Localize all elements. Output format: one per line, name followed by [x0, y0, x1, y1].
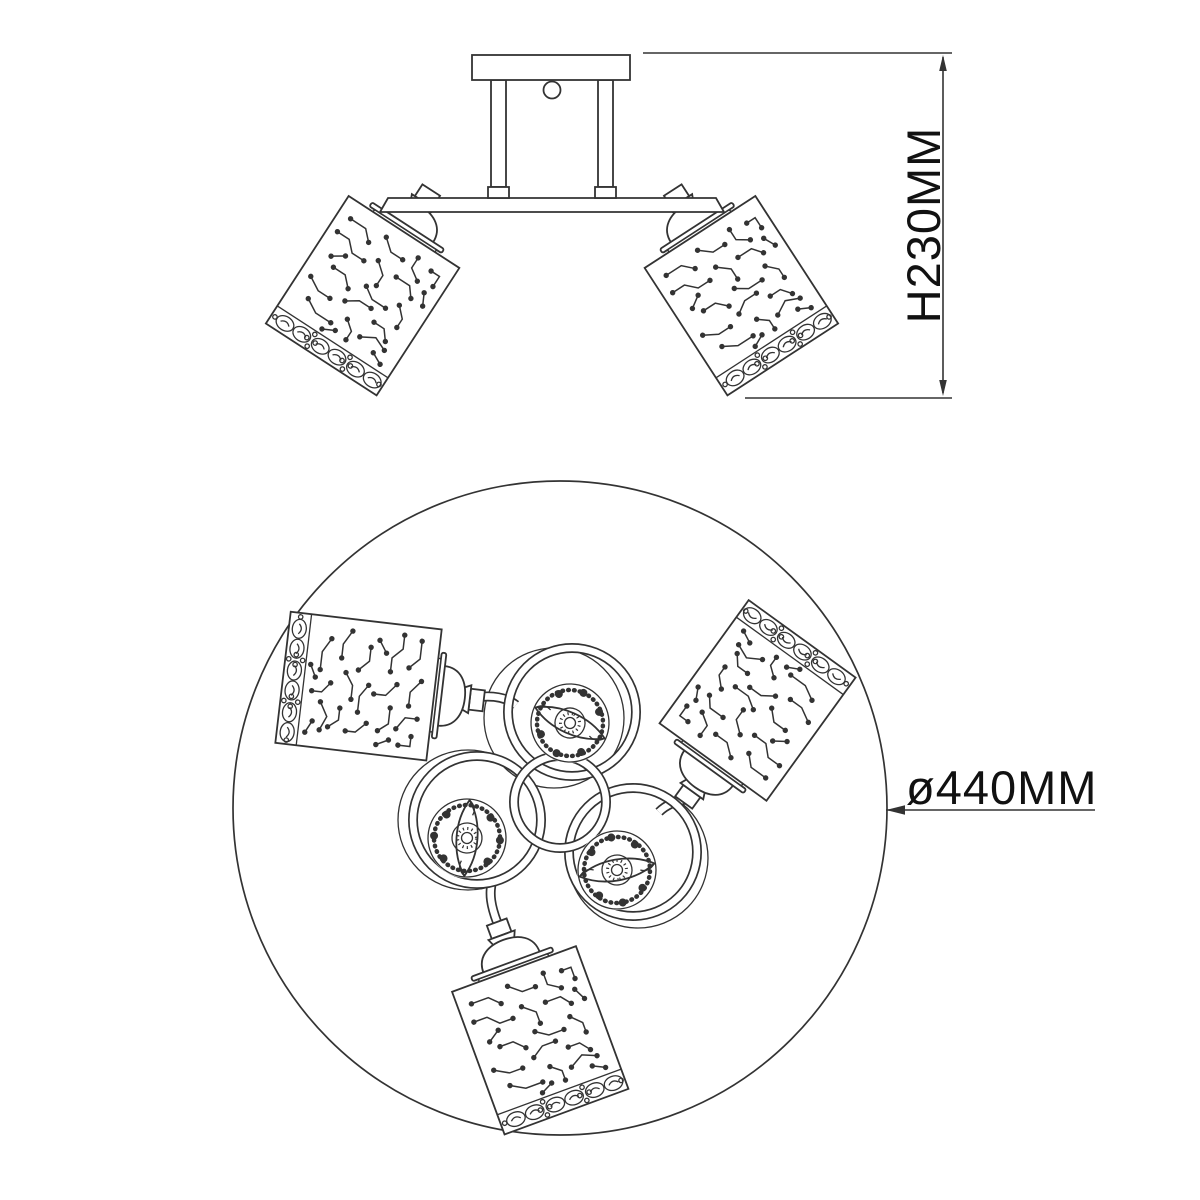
drawing-sheet: H230MM: [0, 0, 1200, 1200]
height-dimension-label: H230MM: [897, 127, 950, 324]
crossbar: [380, 198, 724, 212]
bottom-plan-view: [233, 481, 887, 1135]
side-shade-right: [617, 154, 838, 395]
stem-right: [595, 80, 616, 198]
side-shade-left: [266, 154, 487, 395]
ceiling-plate: [472, 55, 630, 80]
plan-shade-bottom: [435, 899, 629, 1134]
plan-shade-upper-left: [275, 612, 491, 767]
side-elevation-view: [266, 55, 838, 395]
diameter-dimension-label: ø440MM: [906, 761, 1097, 814]
stem-left: [488, 80, 509, 198]
technical-drawing-canvas: H230MM: [0, 0, 1200, 1200]
diameter-dimension: ø440MM: [886, 761, 1097, 815]
mounting-screw: [544, 82, 561, 99]
